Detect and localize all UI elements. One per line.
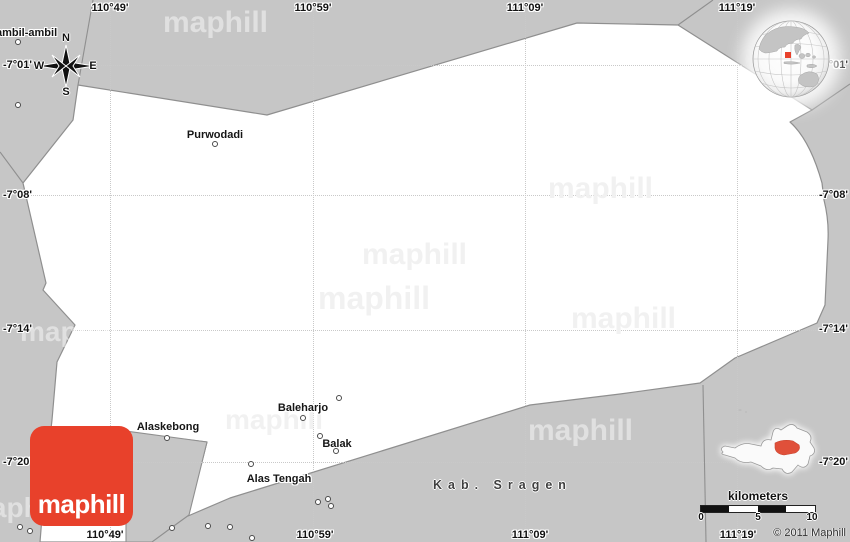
place-marker-baleharjo — [300, 415, 306, 421]
place-label-alas-tengah: Alas Tengah — [247, 473, 312, 485]
place-marker — [227, 524, 233, 530]
tick-top-110-49: 110°49' — [92, 2, 129, 14]
place-marker — [169, 525, 175, 531]
scalebar-tick-0: 0 — [698, 512, 704, 523]
place-marker — [15, 102, 21, 108]
parallel-7-01 — [0, 65, 850, 66]
meridian-110-59 — [313, 0, 314, 542]
tick-bottom-110-49: 110°49' — [87, 529, 124, 541]
region-inset-map[interactable] — [713, 405, 828, 487]
place-label-alaskebong: Alaskebong — [137, 421, 199, 433]
place-marker-purwodadi — [212, 141, 218, 147]
tick-left-7-20: -7°20' — [3, 456, 32, 468]
globe-location-marker — [785, 52, 791, 58]
place-marker — [17, 524, 23, 530]
compass-east-label: E — [89, 60, 96, 72]
inset-island-speck — [738, 409, 741, 411]
tick-top-111-19: 111°19' — [719, 2, 755, 14]
tick-right-7-14: -7°14' — [819, 323, 848, 335]
maphill-logo-text: maphill — [38, 489, 126, 520]
parallel-7-14 — [0, 330, 850, 331]
place-marker — [315, 499, 321, 505]
place-label-purwodadi: Purwodadi — [187, 129, 243, 141]
maphill-logo[interactable]: maphill — [30, 426, 133, 526]
tick-top-110-59: 110°59' — [295, 2, 332, 14]
place-marker — [328, 503, 334, 509]
meridian-111-09 — [525, 0, 526, 542]
tick-bottom-110-59: 110°59' — [297, 529, 334, 541]
place-marker-alaskebong — [164, 435, 170, 441]
compass-south-label: S — [62, 86, 69, 98]
inset-island-speck — [745, 411, 747, 413]
inset-highlighted-region — [775, 440, 800, 455]
place-label-balak: Balak — [322, 438, 351, 450]
scalebar-segment — [701, 506, 729, 512]
tick-left-7-14: -7°14' — [3, 323, 32, 335]
compass-north-label: N — [62, 32, 70, 44]
tick-top-111-09: 111°09' — [507, 2, 543, 14]
scalebar-tick-10: 10 — [806, 512, 817, 523]
scalebar-caption: kilometers — [700, 489, 816, 503]
neighbor-region-label: Kab. Sragen — [433, 478, 572, 492]
place-marker — [15, 39, 21, 45]
place-marker — [205, 523, 211, 529]
place-marker — [325, 496, 331, 502]
compass-west-label: W — [34, 60, 44, 72]
map-canvas[interactable]: maphill maphill maphill maphill maphill … — [0, 0, 850, 542]
place-marker — [249, 535, 255, 541]
tick-right-7-08: -7°08' — [819, 189, 848, 201]
tick-bottom-111-19: 111°19' — [720, 529, 756, 541]
inset-province-shape — [721, 424, 814, 473]
copyright-notice: © 2011 Maphill — [773, 527, 846, 539]
globe-locator[interactable] — [751, 19, 831, 99]
scalebar-tick-5: 5 — [755, 512, 761, 523]
tick-bottom-111-09: 111°09' — [512, 529, 548, 541]
tick-left-7-08: -7°08' — [3, 189, 32, 201]
place-marker — [27, 528, 33, 534]
place-marker — [336, 395, 342, 401]
scalebar-segment — [729, 506, 758, 512]
tick-left-7-01: -7°01' — [3, 59, 32, 71]
parallel-7-08 — [0, 195, 850, 196]
place-label-baleharjo: Baleharjo — [278, 402, 328, 414]
scalebar-segment — [758, 506, 786, 512]
place-marker-alastengah — [248, 461, 254, 467]
